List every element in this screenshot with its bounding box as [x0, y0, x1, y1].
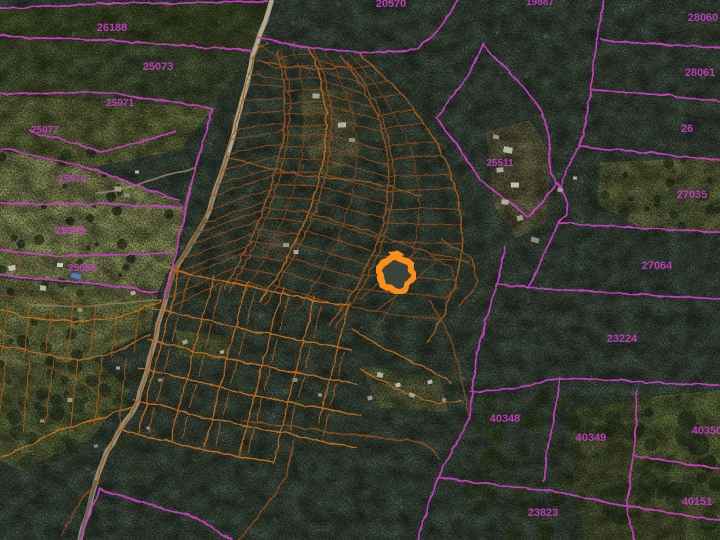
svg-text:26: 26 — [681, 123, 693, 135]
svg-text:25071: 25071 — [106, 98, 134, 109]
svg-text:19887: 19887 — [526, 0, 554, 8]
svg-text:25073: 25073 — [143, 61, 174, 73]
svg-text:40151: 40151 — [682, 496, 713, 508]
svg-text:28060: 28060 — [688, 12, 719, 24]
svg-text:26188: 26188 — [97, 22, 128, 34]
svg-text:25068: 25068 — [68, 263, 96, 274]
svg-text:25070: 25070 — [58, 174, 86, 185]
svg-text:25069: 25069 — [55, 225, 86, 237]
svg-text:27064: 27064 — [642, 260, 673, 272]
svg-text:40349: 40349 — [576, 432, 607, 444]
svg-text:28061: 28061 — [685, 67, 716, 79]
svg-text:27035: 27035 — [677, 189, 708, 201]
svg-text:25077: 25077 — [31, 125, 59, 136]
svg-text:40348: 40348 — [490, 413, 521, 425]
svg-text:25511: 25511 — [486, 158, 514, 169]
svg-text:40350: 40350 — [692, 425, 720, 437]
svg-text:23224: 23224 — [607, 333, 638, 345]
svg-text:20570: 20570 — [376, 0, 407, 10]
svg-text:23823: 23823 — [528, 507, 559, 519]
